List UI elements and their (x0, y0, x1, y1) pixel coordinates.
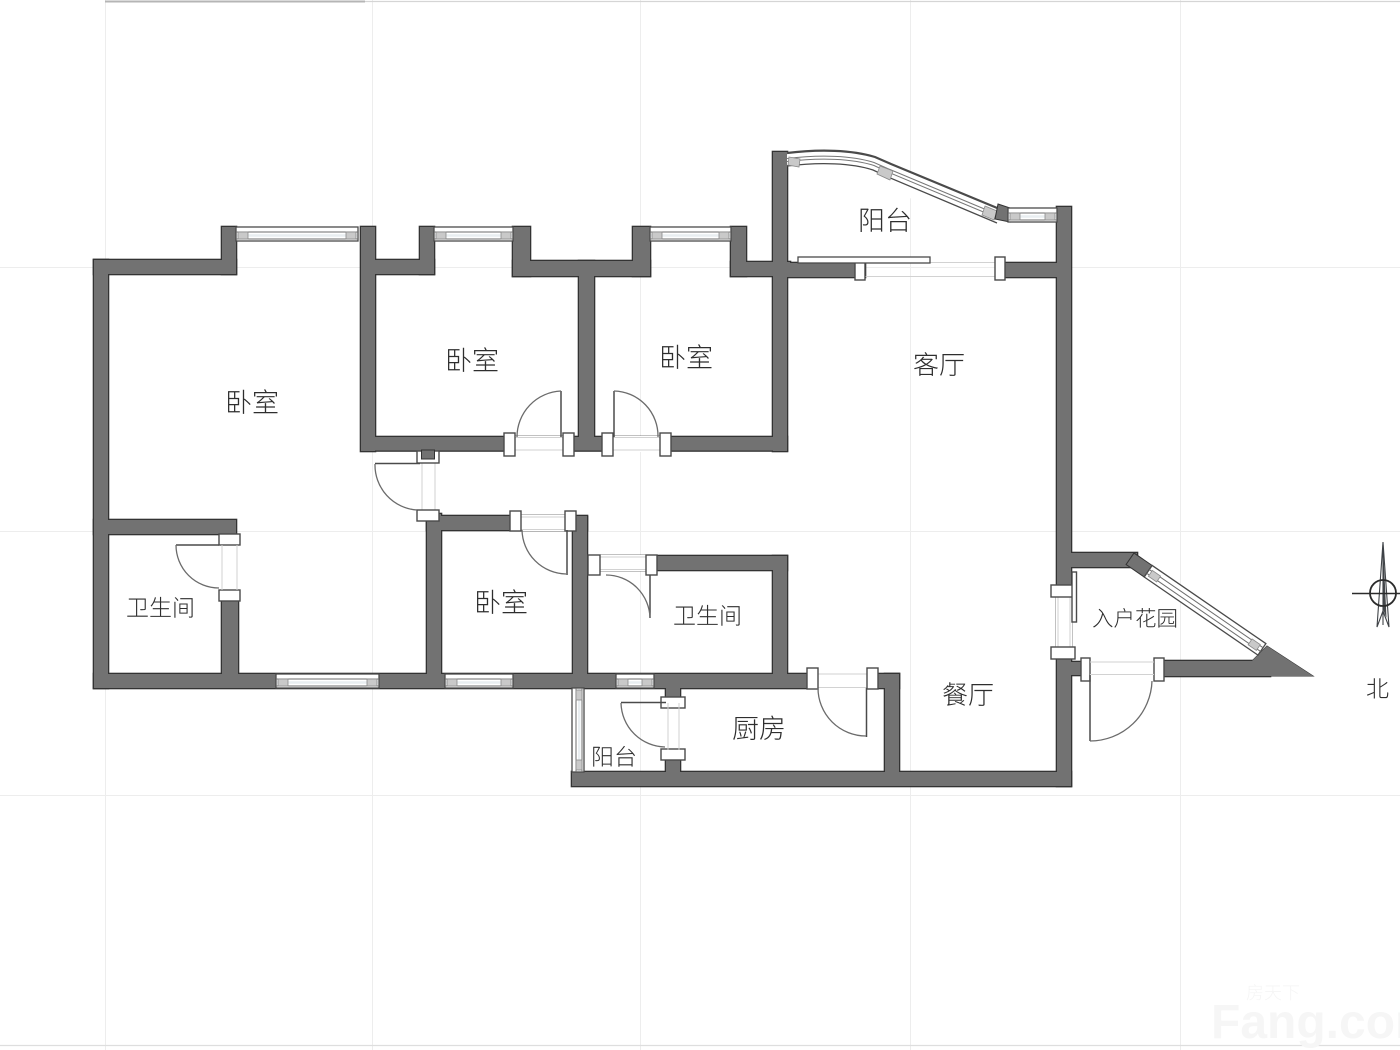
svg-text:Fang.com: Fang.com (1211, 996, 1400, 1049)
